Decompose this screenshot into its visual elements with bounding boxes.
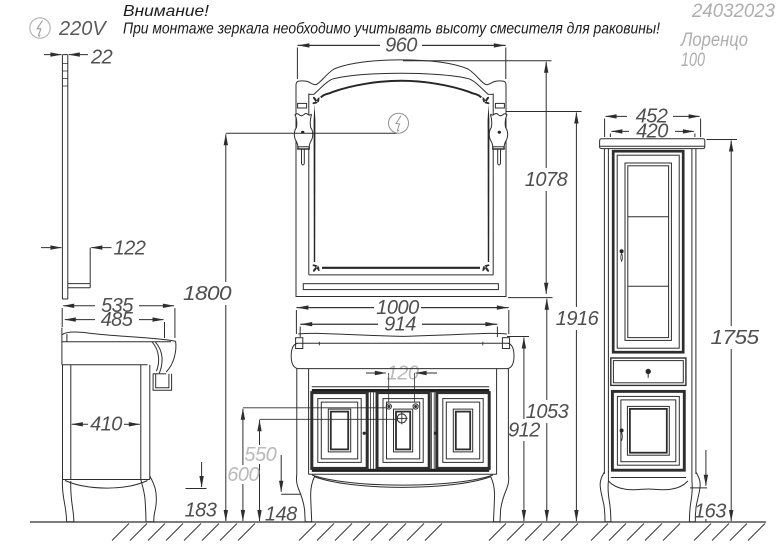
svg-text:1800: 1800 <box>183 283 231 305</box>
svg-text:183: 183 <box>185 500 217 522</box>
svg-text:600: 600 <box>227 464 259 486</box>
svg-text:1916: 1916 <box>556 308 600 330</box>
svg-text:120: 120 <box>387 363 419 385</box>
svg-text:1078: 1078 <box>525 169 568 191</box>
svg-text:410: 410 <box>90 414 122 436</box>
svg-text:Внимание!: Внимание! <box>123 3 210 20</box>
svg-text:163: 163 <box>694 501 726 523</box>
svg-text:22: 22 <box>90 47 113 69</box>
svg-text:1755: 1755 <box>711 327 761 349</box>
svg-text:914: 914 <box>384 314 416 336</box>
svg-text:1053: 1053 <box>526 401 569 423</box>
svg-text:420: 420 <box>636 121 668 143</box>
svg-text:Лоренцо: Лоренцо <box>679 30 748 51</box>
svg-text:960: 960 <box>385 35 417 57</box>
svg-text:485: 485 <box>101 309 134 331</box>
svg-text:24032023: 24032023 <box>691 1 775 22</box>
svg-text:122: 122 <box>114 238 146 260</box>
svg-text:100: 100 <box>681 50 705 71</box>
svg-text:220V: 220V <box>58 18 107 40</box>
svg-text:550: 550 <box>244 444 276 466</box>
